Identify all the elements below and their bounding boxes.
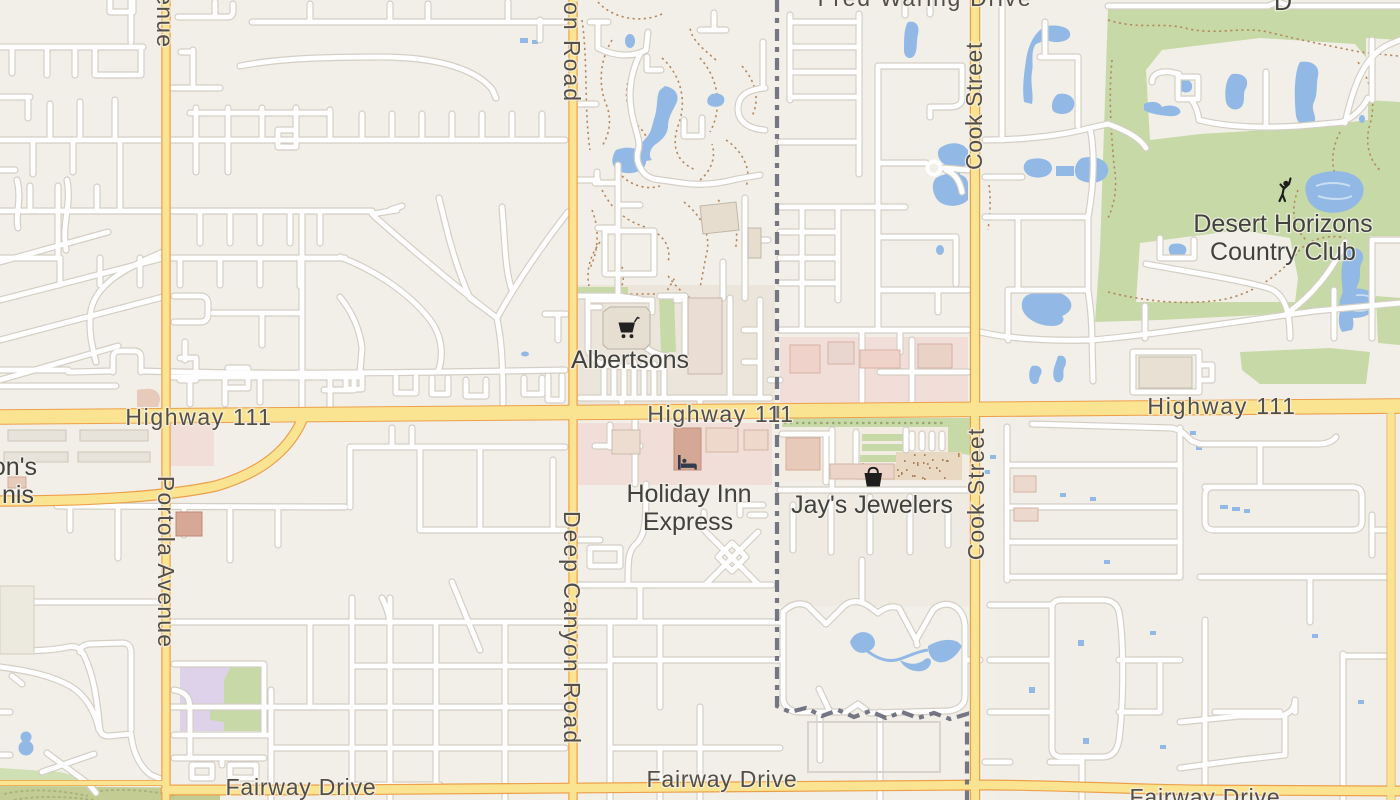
svg-text:Jay's Jewelers: Jay's Jewelers	[791, 491, 953, 519]
svg-text:Desert Horizons: Desert Horizons	[1193, 210, 1372, 238]
svg-text:Portola Avenue: Portola Avenue	[152, 0, 178, 48]
svg-text:Deep Canyon Road: Deep Canyon Road	[559, 511, 585, 745]
svg-text:Highway 111: Highway 111	[1147, 393, 1296, 419]
svg-text:Fairway Drive: Fairway Drive	[647, 766, 798, 792]
svg-text:Albertsons: Albertsons	[571, 346, 689, 374]
svg-text:Highway 111: Highway 111	[647, 401, 794, 427]
svg-text:Cook Street: Cook Street	[963, 428, 989, 560]
svg-text:Cook Street: Cook Street	[961, 42, 987, 170]
svg-text:Country Club: Country Club	[1210, 238, 1356, 266]
svg-text:Highway 111: Highway 111	[125, 404, 272, 430]
svg-text:Fairway Drive: Fairway Drive	[226, 774, 377, 800]
svg-text:Portola Avenue: Portola Avenue	[153, 476, 179, 648]
svg-text:Deep Canyon Road: Deep Canyon Road	[559, 0, 585, 103]
svg-text:on's: on's	[0, 453, 37, 481]
svg-text:Fairway Drive: Fairway Drive	[1130, 784, 1281, 800]
svg-text:nis: nis	[2, 481, 34, 509]
svg-text:Express: Express	[643, 508, 733, 536]
svg-text:Holiday Inn: Holiday Inn	[626, 480, 751, 508]
svg-text:D: D	[1274, 0, 1292, 16]
svg-text:Fred Waring Drive: Fred Waring Drive	[818, 0, 1033, 11]
